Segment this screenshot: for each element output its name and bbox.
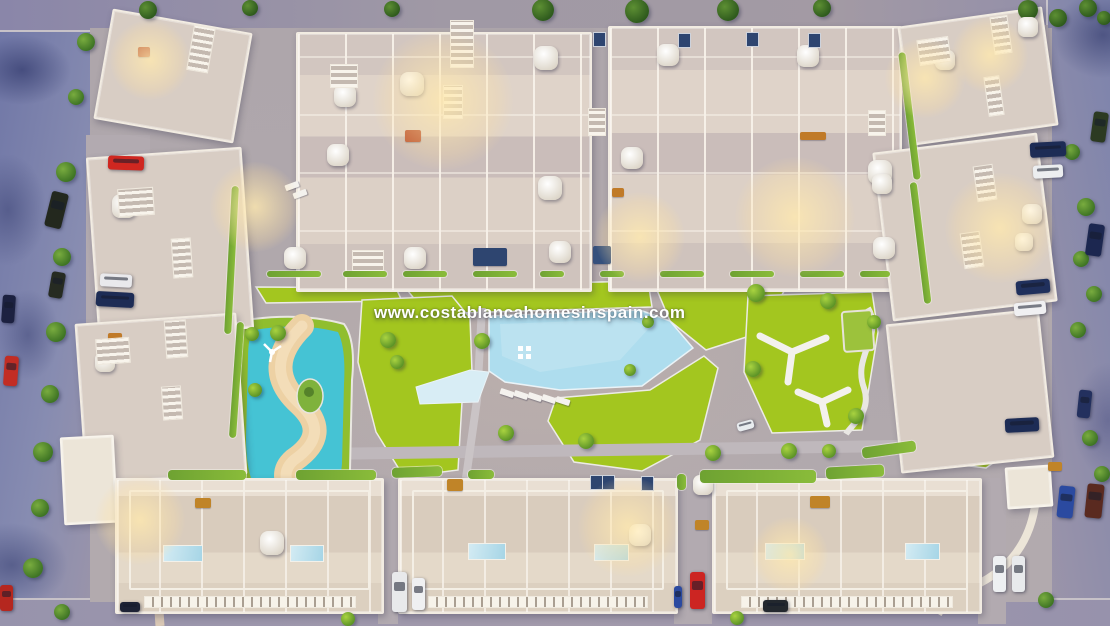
watermark-url: www.costablancahomesinspain.com xyxy=(374,303,686,323)
streetlight-glow xyxy=(210,162,300,252)
streetlight-glow xyxy=(110,20,190,100)
streetlight-glow xyxy=(578,477,678,577)
streetlight-glow xyxy=(95,475,185,565)
streetlight-glow xyxy=(952,17,1028,93)
streetlight-glow xyxy=(373,30,513,170)
streetlight-glow xyxy=(885,38,965,118)
streetlight-glow xyxy=(945,173,1055,283)
streetlight-glow xyxy=(735,157,855,277)
aerial-complex-render: www.costablancahomesinspain.com xyxy=(0,0,1110,626)
streetlight-glow xyxy=(752,517,828,593)
streetlight-glow xyxy=(595,192,685,282)
